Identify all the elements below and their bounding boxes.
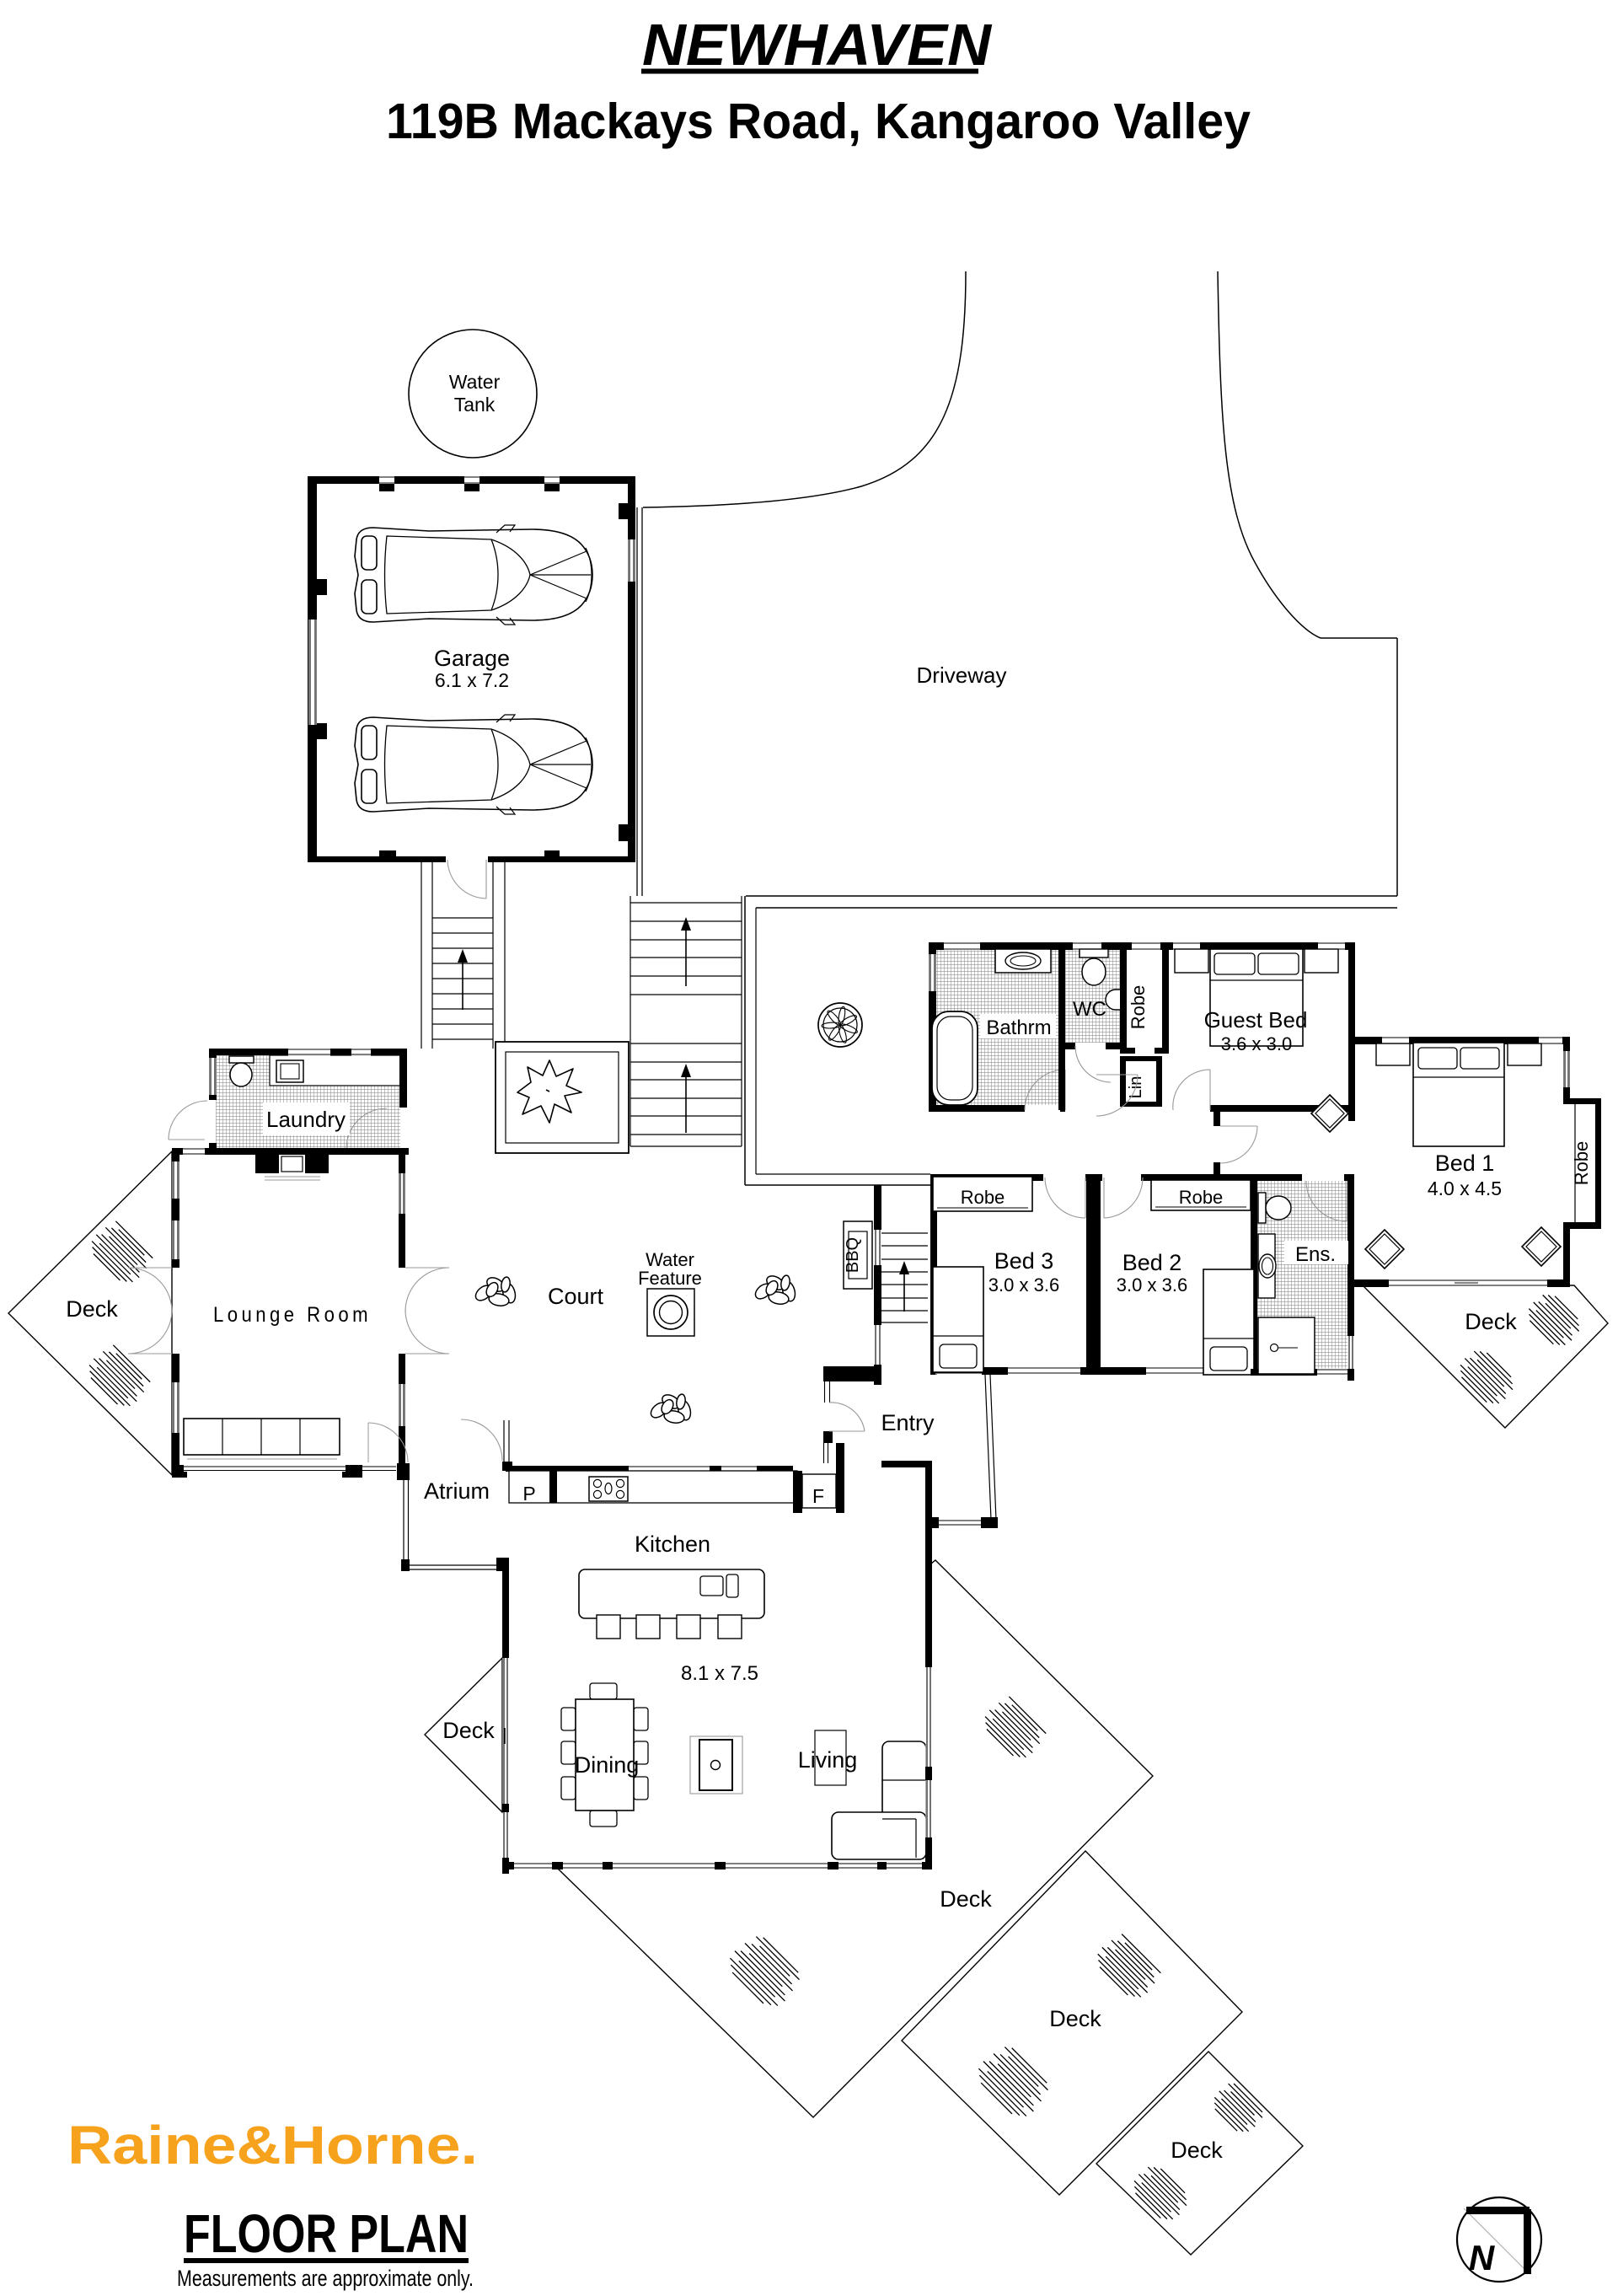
svg-text:Robe: Robe <box>1571 1141 1592 1186</box>
svg-text:Kitchen: Kitchen <box>635 1532 710 1557</box>
svg-text:P: P <box>522 1483 535 1505</box>
svg-text:N: N <box>1469 2238 1496 2277</box>
svg-text:Lounge Room: Lounge Room <box>213 1303 372 1327</box>
svg-text:Deck: Deck <box>442 1718 495 1743</box>
svg-text:Measurements are approximate o: Measurements are approximate only. <box>177 2266 474 2291</box>
svg-text:Ens.: Ens. <box>1295 1243 1336 1266</box>
svg-text:Water: Water <box>449 371 501 393</box>
svg-text:Dining: Dining <box>575 1752 640 1778</box>
svg-text:Bathrm: Bathrm <box>986 1017 1051 1039</box>
svg-text:WC: WC <box>1073 998 1106 1021</box>
svg-text:Guest Bed: Guest Bed <box>1204 1007 1308 1033</box>
svg-text:Robe: Robe <box>1179 1187 1224 1208</box>
svg-text:Bed 1: Bed 1 <box>1435 1151 1495 1176</box>
svg-text:Feature: Feature <box>638 1268 702 1289</box>
svg-text:3.0 x 3.6: 3.0 x 3.6 <box>1117 1274 1187 1296</box>
svg-text:Raine&Horne.: Raine&Horne. <box>67 2115 478 2175</box>
svg-text:Court: Court <box>548 1284 604 1309</box>
svg-text:3.6 x 3.0: 3.6 x 3.0 <box>1221 1033 1292 1054</box>
svg-text:Laundry: Laundry <box>266 1107 346 1132</box>
svg-text:Atrium: Atrium <box>424 1478 490 1504</box>
svg-text:BBQ: BBQ <box>844 1237 862 1273</box>
svg-text:6.1 x 7.2: 6.1 x 7.2 <box>435 669 509 691</box>
svg-text:Tank: Tank <box>454 394 496 416</box>
svg-text:Entry: Entry <box>881 1410 935 1435</box>
svg-text:8.1 x 7.5: 8.1 x 7.5 <box>681 1662 758 1685</box>
svg-text:NEWHAVEN: NEWHAVEN <box>642 12 992 78</box>
svg-text:FLOOR PLAN: FLOOR PLAN <box>184 2203 469 2264</box>
svg-text:Deck: Deck <box>940 1886 992 1912</box>
svg-text:Living: Living <box>798 1747 858 1773</box>
svg-text:Driveway: Driveway <box>917 663 1007 688</box>
svg-text:F: F <box>812 1485 824 1507</box>
svg-text:Deck: Deck <box>1049 2006 1101 2031</box>
svg-text:Deck: Deck <box>1465 1309 1517 1334</box>
svg-text:Garage: Garage <box>434 646 510 671</box>
svg-text:3.0 x 3.6: 3.0 x 3.6 <box>988 1274 1059 1296</box>
svg-text:Robe: Robe <box>961 1187 1005 1208</box>
svg-text:Robe: Robe <box>1128 985 1149 1030</box>
svg-text:Deck: Deck <box>66 1296 118 1322</box>
svg-text:Bed 2: Bed 2 <box>1122 1250 1182 1275</box>
svg-text:Bed 3: Bed 3 <box>994 1248 1054 1274</box>
svg-text:119B Mackays Road, Kangaroo Va: 119B Mackays Road, Kangaroo Valley <box>386 94 1251 149</box>
svg-text:4.0 x 4.5: 4.0 x 4.5 <box>1428 1178 1502 1199</box>
svg-text:Deck: Deck <box>1171 2138 1223 2163</box>
